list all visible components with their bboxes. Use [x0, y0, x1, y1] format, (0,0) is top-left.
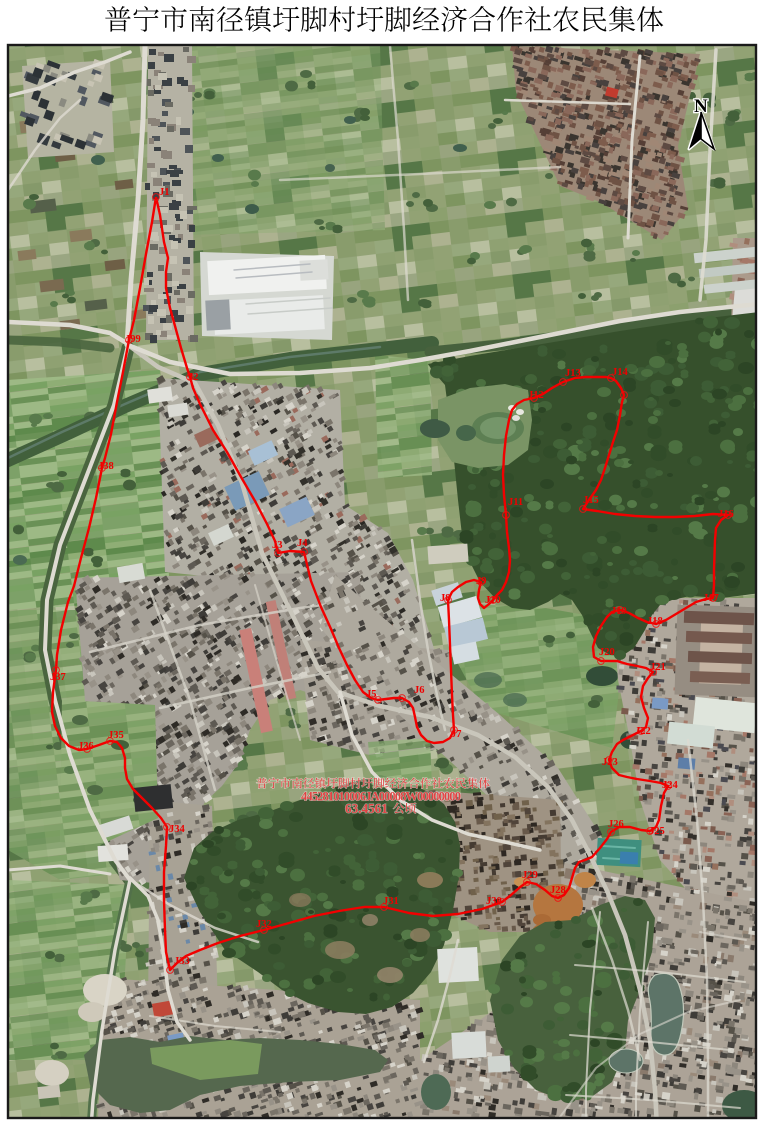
- svg-text:J13: J13: [565, 368, 581, 379]
- svg-text:J38: J38: [98, 461, 114, 472]
- svg-text:J2: J2: [188, 372, 199, 383]
- svg-text:J4: J4: [297, 538, 308, 549]
- svg-text:J5: J5: [366, 689, 377, 700]
- svg-text:J8: J8: [440, 593, 451, 604]
- svg-text:J24: J24: [662, 780, 679, 791]
- svg-text:J36: J36: [78, 741, 94, 752]
- svg-text:J20: J20: [599, 647, 615, 658]
- svg-text:J3: J3: [272, 540, 283, 551]
- svg-text:J6: J6: [414, 685, 425, 696]
- svg-text:J9: J9: [476, 576, 487, 587]
- svg-text:J19: J19: [611, 606, 627, 617]
- svg-text:J99: J99: [125, 334, 141, 345]
- svg-text:J18: J18: [647, 616, 663, 627]
- svg-text:J21: J21: [650, 662, 666, 673]
- svg-text:J29: J29: [522, 870, 538, 881]
- svg-text:63.4561: 63.4561: [345, 801, 388, 816]
- svg-text:J12: J12: [528, 390, 544, 401]
- svg-text:J33: J33: [174, 956, 190, 967]
- svg-text:J7: J7: [451, 729, 462, 740]
- svg-text:J15: J15: [583, 495, 599, 506]
- svg-text:J32: J32: [256, 919, 272, 930]
- svg-text:J11: J11: [508, 497, 523, 508]
- svg-text:J25: J25: [649, 826, 665, 837]
- svg-text:J14: J14: [612, 367, 629, 378]
- svg-text:J35: J35: [108, 730, 124, 741]
- svg-text:N: N: [694, 96, 708, 117]
- svg-text:J23: J23: [602, 757, 618, 768]
- svg-text:J37: J37: [50, 672, 66, 683]
- svg-text:J1: J1: [159, 187, 170, 198]
- svg-text:J28: J28: [550, 885, 566, 896]
- svg-text:J26: J26: [608, 819, 624, 830]
- svg-text:J30: J30: [486, 896, 502, 907]
- svg-text:J17: J17: [703, 593, 719, 604]
- svg-text:J22: J22: [635, 726, 651, 737]
- svg-text:J31: J31: [383, 896, 399, 907]
- svg-text:J34: J34: [169, 824, 186, 835]
- svg-text:J10: J10: [485, 595, 501, 606]
- svg-text:J16: J16: [718, 509, 734, 520]
